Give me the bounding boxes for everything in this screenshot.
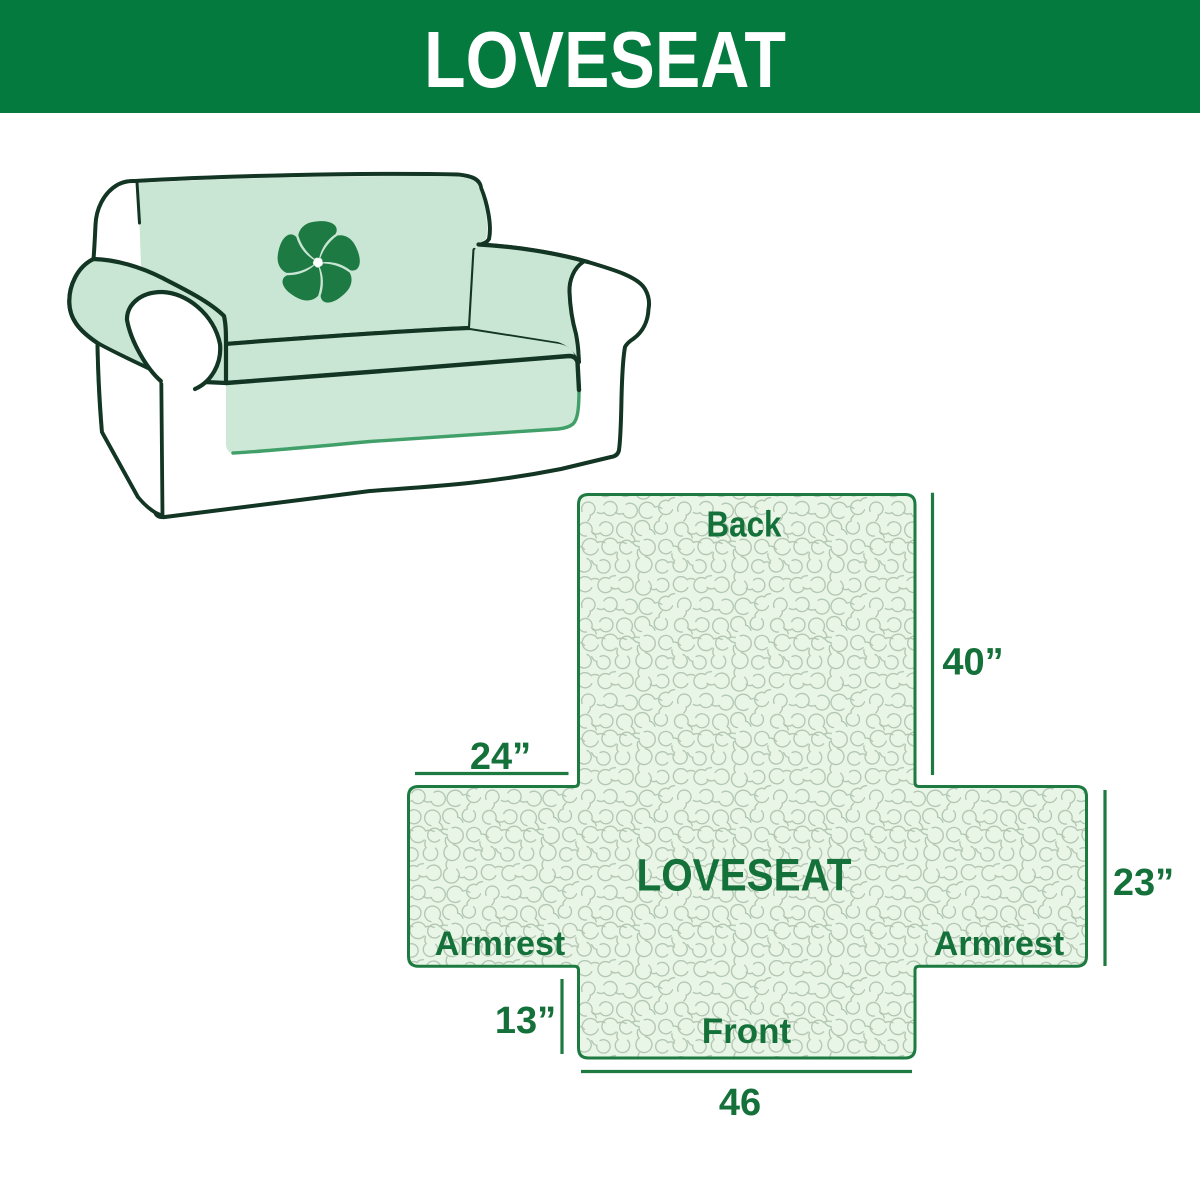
svg-text:23”: 23” — [1113, 862, 1174, 904]
svg-text:Armrest: Armrest — [934, 925, 1064, 963]
svg-text:40”: 40” — [942, 642, 1003, 684]
svg-text:LOVESEAT: LOVESEAT — [637, 850, 852, 901]
svg-text:Armrest: Armrest — [435, 925, 565, 963]
svg-text:Back: Back — [707, 504, 783, 545]
svg-text:24”: 24” — [470, 736, 531, 778]
svg-text:Front: Front — [702, 1012, 792, 1051]
svg-text:LOVESEAT: LOVESEAT — [424, 15, 786, 104]
svg-text:13”: 13” — [495, 1000, 556, 1042]
svg-text:46: 46 — [719, 1082, 761, 1124]
